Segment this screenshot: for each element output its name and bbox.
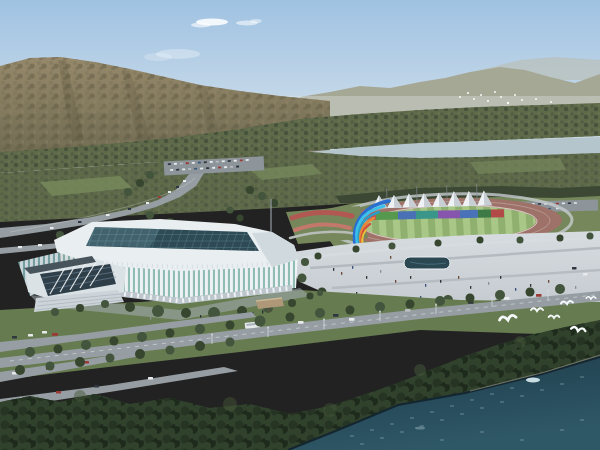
car — [12, 336, 17, 339]
car — [333, 314, 339, 317]
car — [148, 377, 153, 380]
sun-reflection — [526, 378, 540, 383]
reflecting-pool — [404, 257, 450, 269]
car — [94, 385, 99, 388]
scene-canvas: Bird's-eye rendering of a lakeside sport… — [0, 0, 600, 450]
car — [405, 309, 411, 312]
car — [56, 391, 61, 394]
car — [583, 273, 588, 275]
car — [52, 333, 58, 336]
car — [572, 267, 577, 269]
car — [28, 334, 33, 337]
car — [504, 297, 510, 300]
rendering-image: Bird's-eye rendering of a lakeside sport… — [0, 0, 600, 450]
car — [349, 318, 355, 321]
car — [536, 294, 542, 297]
car — [42, 331, 47, 334]
car — [298, 321, 304, 324]
